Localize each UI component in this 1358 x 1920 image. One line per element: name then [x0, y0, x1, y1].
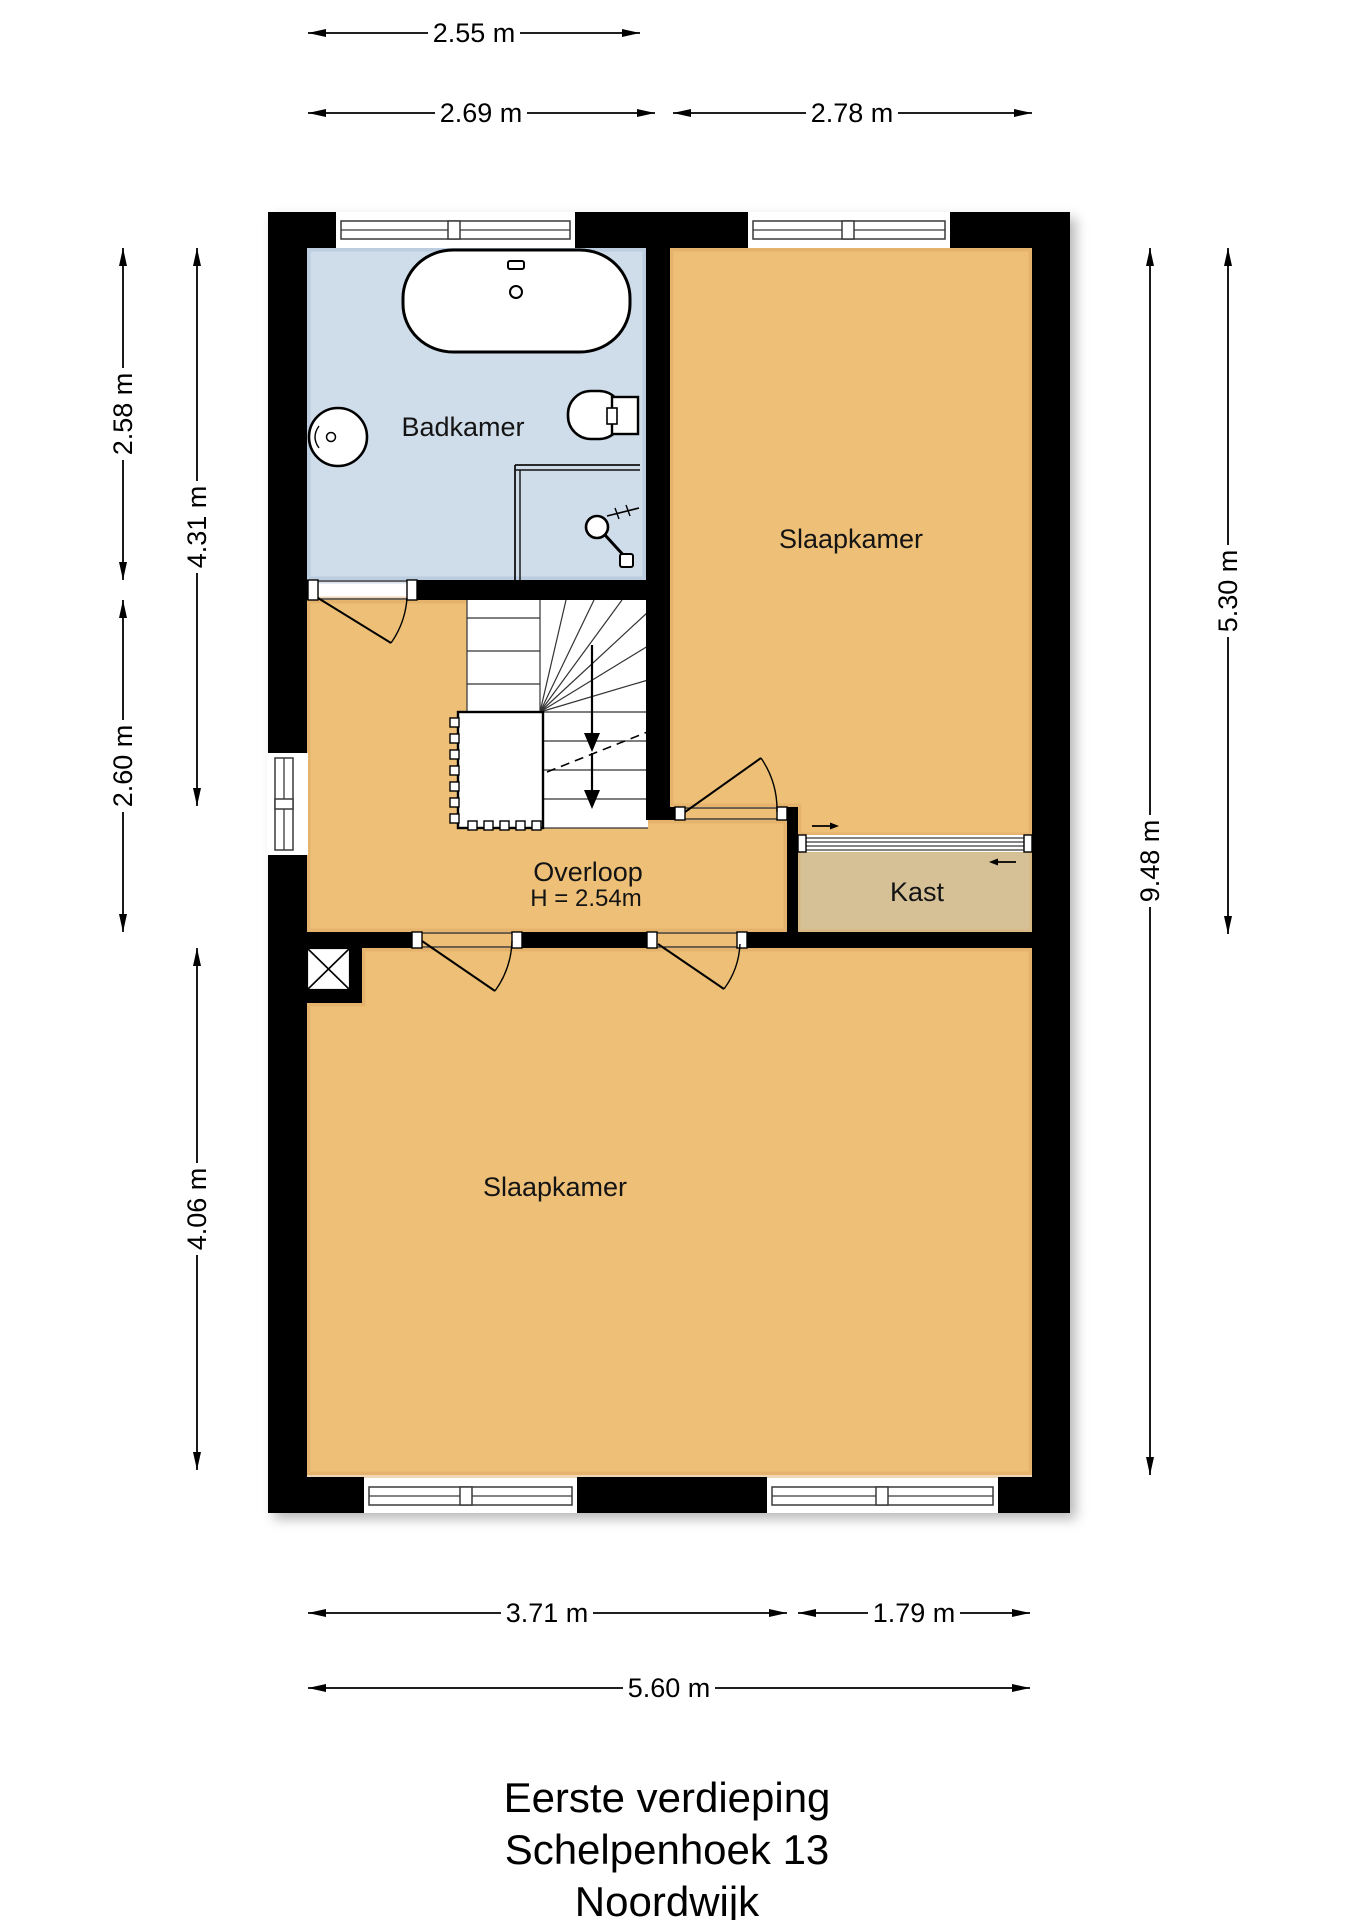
floorplan-page: Badkamer Slaapkamer Overloop H = 2.54m K… [0, 0, 1358, 1920]
stair-landing-block [450, 712, 543, 830]
room-label-badkamer: Badkamer [401, 412, 524, 442]
title-address: Schelpenhoek 13 [505, 1826, 830, 1873]
window-icon [336, 213, 575, 248]
door-opening-strip [657, 933, 737, 947]
dim-top-1: 2.55 m [433, 18, 516, 48]
door-opening-strip [685, 808, 777, 819]
title-city: Noordwijk [575, 1878, 760, 1920]
bathtub-icon [403, 250, 630, 352]
title-floor: Eerste verdieping [504, 1774, 831, 1821]
room-label-slaapkamer-bottom: Slaapkamer [483, 1172, 627, 1202]
window-icon [364, 1478, 577, 1512]
dim-bottom-1: 3.71 m [506, 1598, 589, 1628]
staircase-icon [450, 600, 650, 830]
window-icon [267, 753, 308, 855]
door-opening-strip [422, 933, 512, 947]
floorplan-drawing: Badkamer Slaapkamer Overloop H = 2.54m K… [0, 0, 1358, 1920]
dim-right-1: 5.30 m [1213, 550, 1243, 633]
room-label-kast: Kast [890, 877, 945, 907]
dim-left-4: 4.06 m [182, 1168, 212, 1251]
room-label-slaapkamer-top: Slaapkamer [779, 524, 923, 554]
window-icon [767, 1478, 998, 1512]
window-icon [748, 213, 950, 248]
room-label-overloop: Overloop [533, 857, 643, 887]
sink-icon [309, 408, 367, 466]
shaft-x-icon [307, 948, 350, 990]
dim-right-2: 9.48 m [1135, 820, 1165, 903]
dim-top-2: 2.69 m [440, 98, 523, 128]
room-height-note: H = 2.54m [530, 885, 641, 912]
toilet-icon [568, 391, 638, 439]
dim-bottom-3: 5.60 m [628, 1673, 711, 1703]
dim-left-3: 4.31 m [182, 486, 212, 569]
dim-left-2: 2.60 m [108, 725, 138, 808]
floor-slaapkamer-bottom [307, 948, 1032, 1475]
dim-left-1: 2.58 m [108, 373, 138, 456]
dim-top-3: 2.78 m [811, 98, 894, 128]
title-block: Eerste verdieping Schelpenhoek 13 Noordw… [504, 1774, 831, 1920]
dim-bottom-2: 1.79 m [873, 1598, 956, 1628]
